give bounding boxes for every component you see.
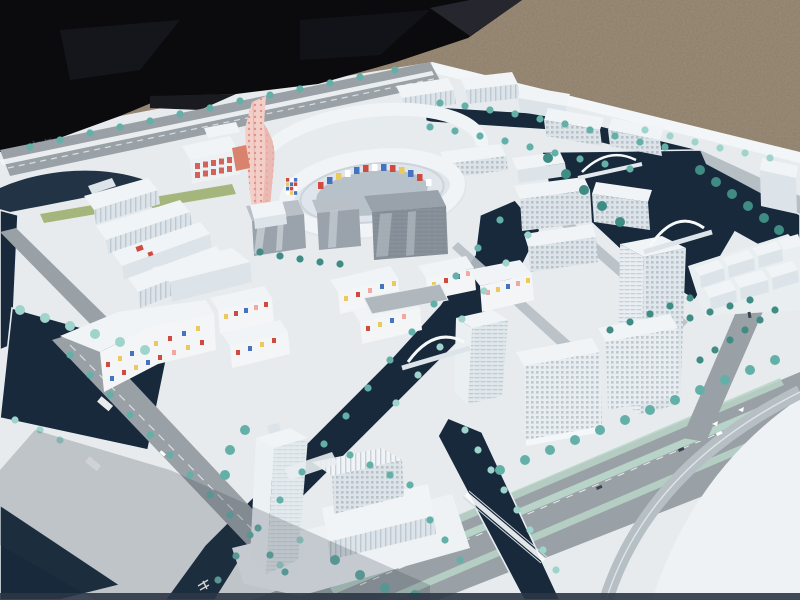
photo-architectural-model — [0, 0, 800, 600]
bottom-edge-strip — [0, 593, 800, 600]
model-photo-canvas — [0, 0, 800, 600]
